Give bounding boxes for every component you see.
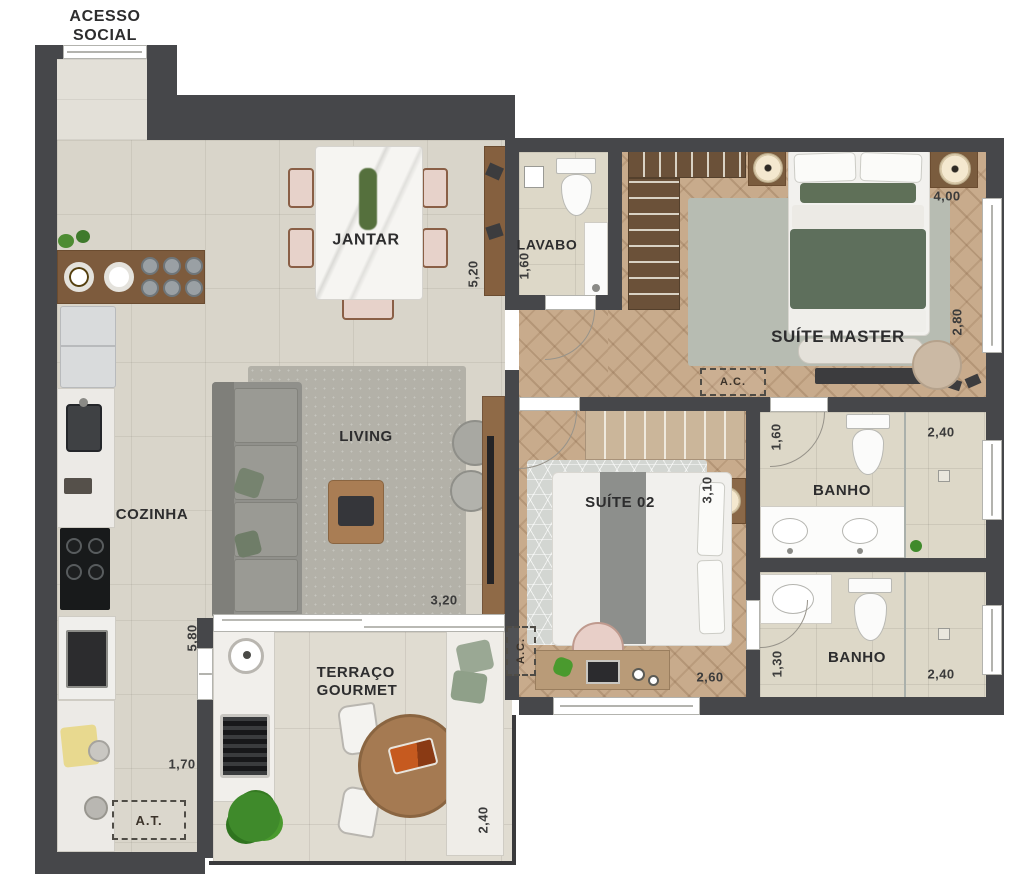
lavabo-door [545, 295, 596, 310]
terrace-rail-bottom [209, 861, 516, 865]
room-label-banho-2: BANHO [828, 649, 886, 667]
coffee-machine [64, 478, 92, 494]
wall-lavabo-left [505, 138, 519, 310]
pillow [794, 152, 857, 183]
burner-icon [88, 538, 104, 554]
room-label-suite-master: SUÍTE MASTER [771, 327, 905, 347]
ac-label: A.C. [720, 376, 746, 388]
desk-decor [632, 668, 645, 681]
kitchen-sink [66, 404, 102, 452]
pouf [912, 340, 962, 390]
dim-jantar-depth: 5,20 [466, 261, 481, 288]
dim-banho-1-length: 2,40 [928, 425, 955, 440]
room-label-terraco: TERRAÇO GOURMET [317, 664, 398, 700]
dim-suite-master-width: 4,00 [934, 189, 961, 204]
plate-stack [163, 279, 181, 297]
dining-chair [288, 168, 314, 208]
dim-cozinha-width: 1,70 [169, 757, 196, 772]
burner-icon [66, 564, 82, 580]
sink-icon [772, 518, 808, 544]
entry-floor [57, 59, 147, 140]
wall-bottom-banhos [700, 697, 1004, 715]
ac-label: A.C. [515, 638, 527, 664]
plate-icon [104, 262, 134, 292]
terrace-rail-right [512, 715, 516, 865]
sofa-cushion [234, 559, 298, 612]
banho2-door [746, 600, 760, 650]
floor-plan: A.C. A.C. A.T. ACESSO SOCIAL JANTAR LAVA… [0, 0, 1025, 894]
plant-large [228, 792, 280, 842]
sink-icon [842, 518, 878, 544]
plate-stack [163, 257, 181, 275]
plant-small [910, 540, 922, 552]
toilet-icon [848, 578, 892, 593]
wall-entry-top [35, 45, 65, 59]
dim-banho-2-width: 1,30 [770, 651, 785, 678]
shower-drain [938, 470, 950, 482]
shower-glass [904, 412, 906, 558]
dim-banho-2-length: 2,40 [928, 667, 955, 682]
dim-cozinha-depth: 5,80 [185, 625, 200, 652]
lamp-icon [753, 153, 783, 183]
wall-bottom-left [35, 852, 205, 874]
dim-suite-02-depth: 3,10 [700, 477, 715, 504]
plate-stack [141, 279, 159, 297]
wall-banho1-top [828, 397, 1004, 412]
terrace-sliding-door [213, 614, 505, 632]
table-runner-plant [359, 168, 377, 230]
burner-icon [88, 564, 104, 580]
faucet-icon [79, 398, 88, 407]
wall-top-right [505, 138, 1004, 152]
banho1-door [770, 397, 828, 412]
closet [628, 148, 746, 178]
lamp-icon [939, 153, 971, 185]
toilet-icon [556, 158, 596, 174]
bowl [84, 796, 108, 820]
desk-decor [648, 675, 659, 686]
wall-banho1-top [760, 397, 770, 412]
plate-stack [141, 257, 159, 275]
bench-cushion [450, 670, 488, 704]
at-box: A.T. [112, 800, 186, 840]
suite02-door [519, 397, 580, 411]
faucet-icon [592, 284, 600, 292]
sofa-cushion [234, 388, 298, 443]
laptop-icon [586, 660, 620, 684]
wall-suites-banhos [746, 650, 760, 697]
room-label-banho-1: BANHO [813, 482, 871, 500]
closet [628, 178, 680, 310]
lavabo-art [524, 166, 544, 188]
herb-plant [76, 230, 90, 243]
dining-chair [288, 228, 314, 268]
bowl [88, 740, 110, 762]
grill [220, 714, 270, 778]
room-label-suite-02: SUÍTE 02 [585, 494, 655, 512]
room-label-lavabo: LAVABO [517, 237, 578, 254]
shower-drain [938, 628, 950, 640]
bed-cushion [800, 183, 916, 203]
ac-box-suite-02: A.C. [506, 626, 536, 676]
wall-left [35, 45, 57, 865]
window-suite-master [982, 198, 1002, 353]
fridge-door-line [60, 345, 116, 347]
fridge [60, 306, 116, 388]
room-label-cozinha: COZINHA [116, 506, 189, 524]
toilet-icon [846, 414, 890, 429]
room-label-jantar: JANTAR [332, 230, 399, 249]
wall-jantar-top [147, 95, 515, 140]
kitchen-pass-window [197, 648, 213, 700]
herb-plant [58, 234, 74, 248]
plate-stack [185, 257, 203, 275]
window-banho-2 [982, 605, 1002, 675]
room-label-living: LIVING [339, 428, 393, 446]
dim-terraco-depth: 2,40 [476, 807, 491, 834]
coffee-table-tray [338, 496, 374, 526]
wall-suite02-top [580, 397, 746, 411]
faucet-icon [243, 651, 251, 659]
faucet-icon [787, 548, 793, 554]
oven-window [66, 630, 108, 688]
pillow [860, 152, 923, 183]
wardrobe [585, 403, 745, 460]
dim-suite-master-depth: 2,80 [950, 309, 965, 336]
dim-living-width: 3,20 [431, 593, 458, 608]
dim-suite-02-width: 2,60 [697, 670, 724, 685]
plate-icon [64, 262, 94, 292]
ac-box-suite-master: A.C. [700, 368, 766, 396]
at-label: A.T. [135, 813, 162, 828]
duvet-green [790, 229, 926, 309]
wall-lavabo-bottom [519, 295, 545, 310]
plate-stack [185, 279, 203, 297]
lower-counter [57, 700, 115, 852]
sofa-back [212, 382, 234, 618]
shower-glass [904, 572, 906, 697]
tv-screen [487, 436, 494, 584]
dim-lavabo-width: 1,60 [517, 253, 532, 280]
window-suite-02 [553, 697, 700, 715]
dining-chair [422, 168, 448, 208]
dining-chair [422, 228, 448, 268]
entry-door [63, 45, 147, 59]
window-banho-1 [982, 440, 1002, 520]
faucet-icon [857, 548, 863, 554]
pillow [697, 560, 726, 635]
wall-lavabo-bottom [596, 295, 622, 310]
dim-banho-1-width: 1,60 [769, 424, 784, 451]
bed-fold [792, 205, 924, 229]
wall-lavabo-right [608, 138, 622, 303]
wall-suites-banhos [746, 397, 760, 600]
entry-label: ACESSO SOCIAL [69, 7, 140, 45]
burner-icon [66, 538, 82, 554]
wall-bottom-banhos [519, 697, 553, 715]
wall-banho-divider [760, 558, 986, 572]
